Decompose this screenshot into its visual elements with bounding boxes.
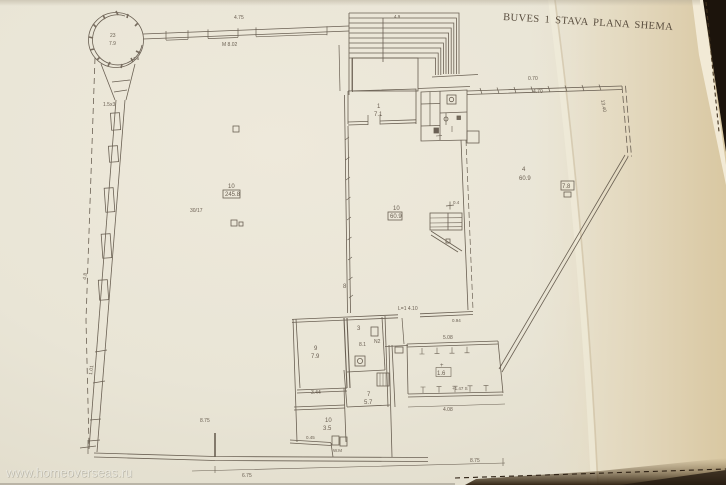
svg-text:5.08: 5.08 <box>443 335 453 341</box>
svg-text:0.45: 0.45 <box>306 435 315 440</box>
svg-text:3.44: 3.44 <box>311 390 321 396</box>
svg-text:+: + <box>440 363 444 369</box>
svg-text:8.75: 8.75 <box>200 418 210 424</box>
svg-text:8.75: 8.75 <box>470 458 480 464</box>
svg-text:0.70: 0.70 <box>528 76 538 82</box>
svg-text:4.8: 4.8 <box>82 272 89 280</box>
svg-text:6.75: 6.75 <box>242 473 252 479</box>
svg-text:M 8.02: M 8.02 <box>222 42 238 48</box>
svg-text:N2: N2 <box>374 339 381 345</box>
svg-text:10: 10 <box>393 206 400 212</box>
svg-text:1.6: 1.6 <box>437 371 446 377</box>
svg-text:4.9: 4.9 <box>394 14 401 19</box>
svg-text:7.1: 7.1 <box>374 112 383 118</box>
svg-text:L=1 4.10: L=1 4.10 <box>398 306 418 312</box>
svg-text:245.8: 245.8 <box>225 192 241 198</box>
svg-text:7.8: 7.8 <box>562 184 571 190</box>
svg-text:7.9: 7.9 <box>311 354 320 360</box>
svg-text:0.4: 0.4 <box>453 200 460 205</box>
svg-text:5.7: 5.7 <box>364 400 373 406</box>
svg-text:+1.47 S: +1.47 S <box>452 386 468 391</box>
svg-text:60.9: 60.9 <box>390 214 402 220</box>
svg-text:23: 23 <box>110 33 116 39</box>
svg-text:1.6: 1.6 <box>133 56 140 61</box>
svg-text:4.75: 4.75 <box>234 15 244 21</box>
svg-text:7.9: 7.9 <box>109 41 116 47</box>
svg-text:1.5x3: 1.5x3 <box>103 102 115 108</box>
svg-text:8.1: 8.1 <box>359 342 366 348</box>
svg-text:30/17: 30/17 <box>190 208 203 214</box>
svg-text:60.9: 60.9 <box>519 176 531 182</box>
svg-text:3.5: 3.5 <box>323 426 332 432</box>
svg-text:10: 10 <box>228 184 235 190</box>
svg-text:4.08: 4.08 <box>443 407 453 413</box>
svg-text:W.M: W.M <box>333 448 342 453</box>
svg-text:0.94: 0.94 <box>452 318 461 323</box>
svg-text:4.70: 4.70 <box>533 89 543 95</box>
svg-text:www.homeoverseas.ru: www.homeoverseas.ru <box>5 466 132 480</box>
svg-text:10: 10 <box>325 418 332 424</box>
